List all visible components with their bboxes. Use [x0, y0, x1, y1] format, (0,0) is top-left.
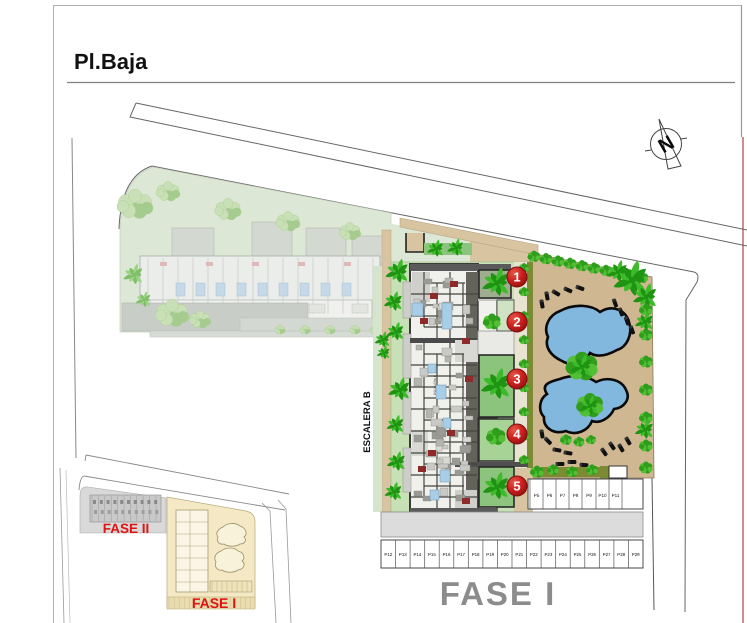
svg-text:P11: P11	[612, 493, 620, 498]
svg-text:FASE II: FASE II	[103, 521, 150, 536]
svg-text:P21: P21	[515, 552, 523, 557]
svg-text:1: 1	[513, 270, 520, 285]
svg-text:P19: P19	[486, 552, 494, 557]
svg-text:P27: P27	[603, 552, 611, 557]
svg-text:P25: P25	[574, 552, 582, 557]
svg-text:5: 5	[513, 479, 520, 494]
svg-text:FASE I: FASE I	[440, 575, 557, 612]
svg-text:P10: P10	[598, 493, 607, 498]
svg-text:P26: P26	[588, 552, 596, 557]
svg-text:P20: P20	[501, 552, 509, 557]
svg-text:3: 3	[513, 372, 520, 387]
svg-text:P5: P5	[534, 493, 540, 498]
svg-text:P15: P15	[428, 552, 436, 557]
svg-text:P28: P28	[617, 552, 625, 557]
svg-text:FASE I: FASE I	[192, 595, 236, 611]
svg-text:P16: P16	[443, 552, 451, 557]
svg-text:4: 4	[513, 427, 521, 442]
svg-text:P29: P29	[632, 552, 640, 557]
svg-text:P18: P18	[472, 552, 480, 557]
svg-text:P14: P14	[413, 552, 421, 557]
svg-text:P13: P13	[399, 552, 407, 557]
svg-text:P8: P8	[573, 493, 579, 498]
svg-text:P17: P17	[457, 552, 465, 557]
svg-text:Pl.Baja: Pl.Baja	[74, 49, 148, 74]
svg-text:P23: P23	[544, 552, 552, 557]
svg-text:2: 2	[513, 315, 520, 330]
svg-text:P12: P12	[384, 552, 392, 557]
svg-text:ESCALERA B: ESCALERA B	[433, 375, 437, 395]
svg-text:P9: P9	[586, 493, 592, 498]
svg-text:P24: P24	[559, 552, 567, 557]
svg-text:P7: P7	[560, 493, 566, 498]
svg-text:P6: P6	[547, 493, 553, 498]
svg-text:P22: P22	[530, 552, 538, 557]
svg-text:ESCALERA B: ESCALERA B	[362, 391, 373, 453]
